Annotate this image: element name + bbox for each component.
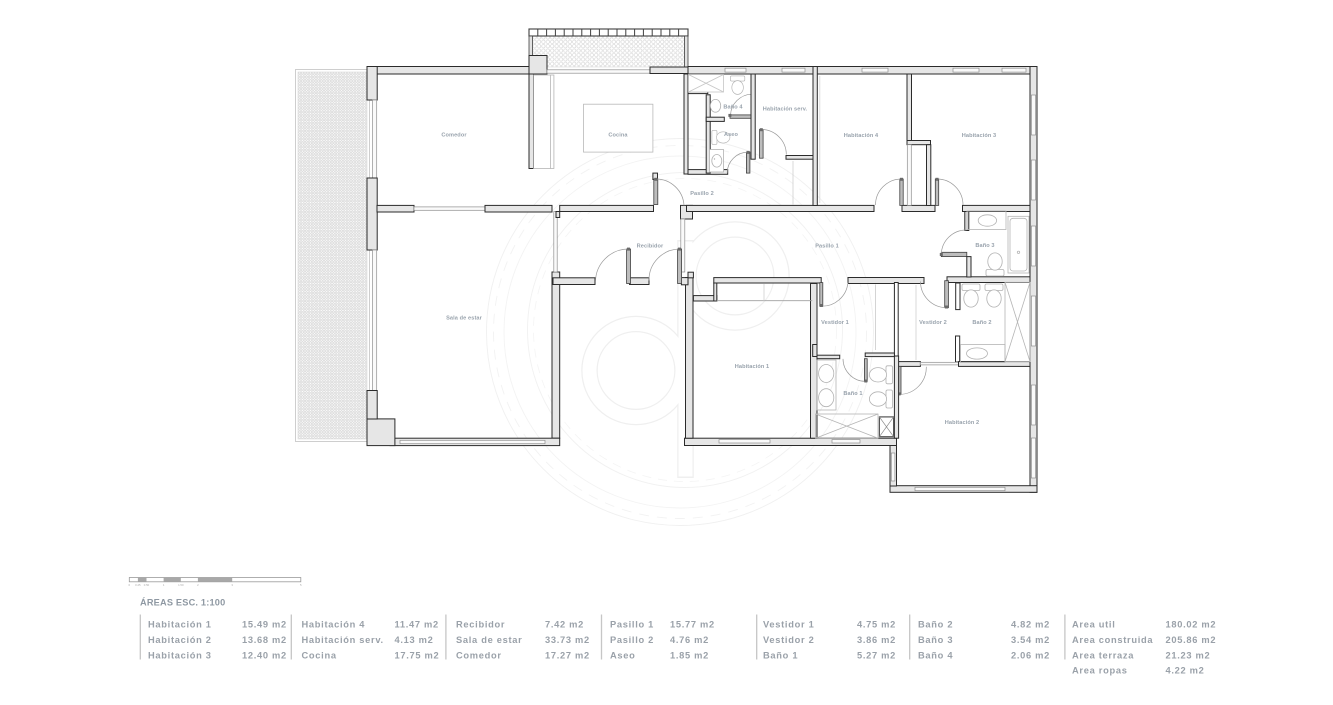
svg-text:4.75 m2: 4.75 m2 [857, 620, 896, 630]
svg-text:Area util: Area util [1072, 620, 1116, 630]
svg-text:1.50: 1.50 [178, 583, 184, 587]
svg-text:17.75 m2: 17.75 m2 [395, 650, 440, 660]
svg-text:5.27 m2: 5.27 m2 [857, 650, 896, 660]
svg-text:0: 0 [129, 583, 131, 587]
svg-text:Recibidor: Recibidor [637, 244, 664, 250]
svg-text:180.02 m2: 180.02 m2 [1166, 620, 1217, 630]
svg-text:Comedor: Comedor [441, 133, 467, 139]
svg-text:3.86 m2: 3.86 m2 [857, 635, 896, 645]
svg-text:Area construida: Area construida [1072, 635, 1153, 645]
svg-text:4.82 m2: 4.82 m2 [1011, 620, 1050, 630]
svg-text:Cocina: Cocina [302, 650, 337, 660]
svg-text:Habitación 4: Habitación 4 [844, 133, 879, 139]
svg-text:Habitación 2: Habitación 2 [945, 420, 979, 426]
svg-text:Habitación 3: Habitación 3 [962, 133, 996, 139]
svg-text:Baño 4: Baño 4 [918, 650, 953, 660]
svg-text:Cocina: Cocina [608, 133, 628, 139]
svg-text:13.68 m2: 13.68 m2 [242, 635, 287, 645]
svg-text:12.40 m2: 12.40 m2 [242, 650, 287, 660]
svg-text:Area terraza: Area terraza [1072, 650, 1134, 660]
svg-text:Comedor: Comedor [456, 650, 502, 660]
svg-text:Habitación serv.: Habitación serv. [763, 107, 808, 113]
svg-text:0.50: 0.50 [144, 583, 150, 587]
svg-text:Vestidor 1: Vestidor 1 [821, 320, 849, 326]
svg-text:Vestidor 1: Vestidor 1 [763, 620, 814, 630]
svg-text:17.27 m2: 17.27 m2 [545, 650, 590, 660]
svg-text:Habitación 1: Habitación 1 [735, 364, 769, 370]
svg-text:11.47 m2: 11.47 m2 [395, 620, 439, 630]
svg-text:Aseo: Aseo [610, 650, 636, 660]
svg-text:Baño 1: Baño 1 [763, 650, 798, 660]
svg-text:4.13 m2: 4.13 m2 [395, 635, 434, 645]
svg-text:Pasillo 2: Pasillo 2 [690, 191, 714, 197]
svg-text:Baño 4: Baño 4 [723, 105, 743, 111]
svg-text:15.49 m2: 15.49 m2 [242, 620, 287, 630]
svg-text:Aseo: Aseo [724, 132, 739, 138]
svg-text:Pasillo 2: Pasillo 2 [610, 635, 654, 645]
svg-text:4.22 m2: 4.22 m2 [1166, 665, 1205, 675]
svg-text:Habitación serv.: Habitación serv. [302, 635, 384, 645]
svg-text:Habitación 2: Habitación 2 [148, 635, 212, 645]
svg-text:7.42 m2: 7.42 m2 [545, 620, 584, 630]
svg-text:Baño 3: Baño 3 [918, 635, 953, 645]
svg-text:Pasillo 1: Pasillo 1 [610, 620, 654, 630]
svg-text:3: 3 [231, 583, 233, 587]
svg-text:4.76 m2: 4.76 m2 [670, 635, 709, 645]
svg-text:0.25: 0.25 [135, 583, 141, 587]
svg-text:Habitación 4: Habitación 4 [302, 620, 366, 630]
svg-text:Baño 3: Baño 3 [975, 243, 994, 249]
svg-text:Baño 2: Baño 2 [972, 320, 991, 326]
svg-text:205.86 m2: 205.86 m2 [1166, 635, 1217, 645]
svg-text:Sala de estar: Sala de estar [456, 635, 522, 645]
svg-text:Pasillo 1: Pasillo 1 [815, 244, 839, 250]
svg-text:5: 5 [300, 583, 302, 587]
svg-text:Habitación 3: Habitación 3 [148, 650, 212, 660]
svg-text:Area ropas: Area ropas [1072, 665, 1128, 675]
svg-text:Habitación 1: Habitación 1 [148, 620, 212, 630]
svg-text:15.77 m2: 15.77 m2 [670, 620, 715, 630]
svg-text:2.06 m2: 2.06 m2 [1011, 650, 1050, 660]
svg-text:33.73 m2: 33.73 m2 [545, 635, 590, 645]
svg-text:2: 2 [197, 583, 199, 587]
svg-text:ÁREAS ESC. 1:100: ÁREAS ESC. 1:100 [140, 597, 225, 608]
svg-text:Sala de estar: Sala de estar [446, 316, 483, 322]
svg-text:Baño 1: Baño 1 [843, 391, 862, 397]
svg-text:Vestidor 2: Vestidor 2 [919, 320, 947, 326]
svg-text:21.23 m2: 21.23 m2 [1166, 650, 1211, 660]
svg-text:Baño 2: Baño 2 [918, 620, 953, 630]
svg-text:Vestidor 2: Vestidor 2 [763, 635, 814, 645]
svg-text:3.54 m2: 3.54 m2 [1011, 635, 1050, 645]
svg-text:1: 1 [163, 583, 165, 587]
svg-text:Recibidor: Recibidor [456, 620, 505, 630]
svg-text:1.85 m2: 1.85 m2 [670, 650, 709, 660]
